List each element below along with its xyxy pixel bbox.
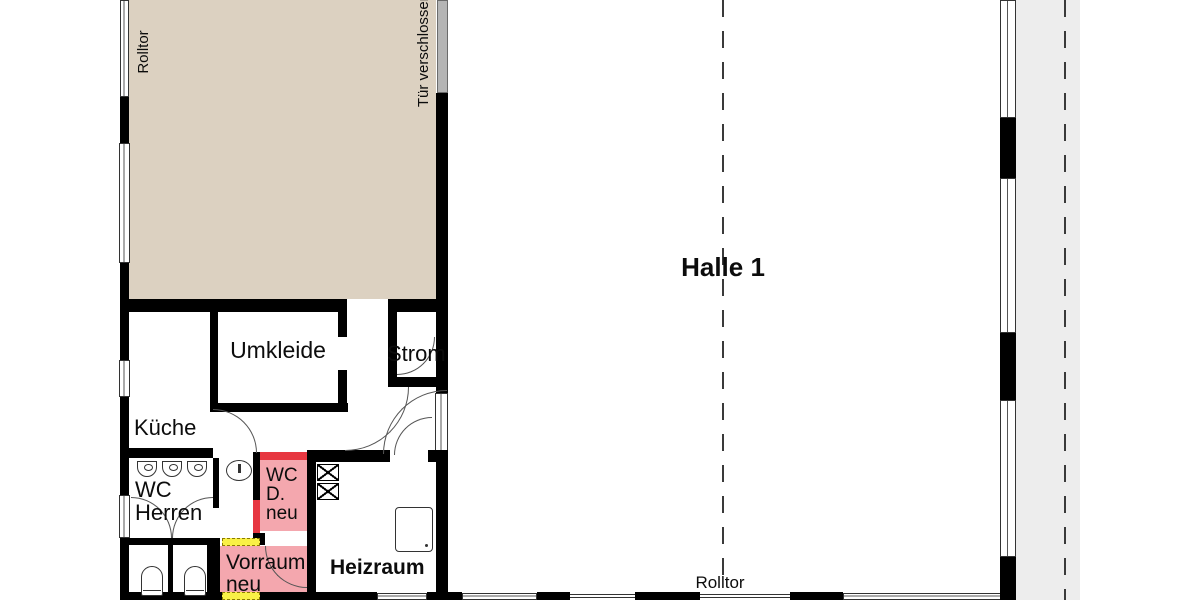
urinal-icon: [137, 461, 157, 477]
room-label-line: neu: [266, 504, 298, 523]
wall-segment: [307, 450, 390, 462]
wall-segment: [388, 299, 448, 312]
wall-segment: [120, 538, 129, 600]
window: [119, 143, 130, 263]
highlighted-wall: [258, 452, 307, 460]
wall-segment: [120, 448, 213, 458]
room-label-line: WC: [266, 466, 298, 485]
toilet-icon: [141, 566, 163, 596]
urinal-icon: [187, 461, 207, 477]
door-label-tuer-verschlossen: Tür verschlossen: [416, 0, 432, 107]
urinal-icon: [162, 461, 182, 477]
window: [1000, 178, 1016, 333]
shaft-box-icon: [317, 464, 339, 481]
room-label-heizraum: Heizraum: [330, 557, 425, 579]
window: [1000, 0, 1016, 118]
exterior-strip: [1016, 0, 1080, 600]
room-label-vorraum-neu: Vorraum neu: [226, 552, 305, 596]
window: [119, 360, 130, 397]
wall-segment: [120, 592, 222, 600]
toilet-icon: [184, 566, 206, 596]
window: [462, 593, 537, 600]
door-label-rolltor-left: Rolltor: [136, 30, 152, 73]
highlighted-wall: [253, 500, 260, 533]
wall-segment: [120, 538, 218, 545]
wall-segment: [427, 592, 462, 600]
locked-door: [437, 0, 448, 93]
wall-segment: [120, 397, 129, 495]
room-label-wc-herren: WC Herren: [135, 479, 202, 525]
rolltor-door-bottom: [700, 594, 790, 598]
room-label-line: D.: [266, 485, 298, 504]
wall-segment: [1000, 118, 1016, 178]
storage-room: [129, 0, 436, 299]
wall-segment: [120, 299, 347, 312]
wall-segment: [1000, 557, 1016, 600]
rolltor-door-left: [120, 0, 129, 97]
wall-segment: [436, 453, 448, 600]
wall-segment: [307, 452, 316, 600]
wall-segment: [790, 592, 843, 600]
room-label-line: WC: [135, 479, 202, 502]
wall-segment: [388, 377, 448, 387]
wall-segment: [120, 97, 129, 143]
room-label-halle: Halle 1: [648, 254, 798, 281]
room-label-wc-d-neu: WC D. neu: [266, 466, 298, 523]
room-label-umkleide: Umkleide: [218, 339, 338, 363]
wall-segment: [537, 592, 570, 600]
sink-icon: [226, 460, 252, 481]
window: [843, 593, 1008, 600]
wall-segment: [338, 312, 347, 337]
window: [1000, 400, 1016, 557]
wall-segment: [635, 592, 700, 600]
room-label-kueche: Küche: [134, 417, 196, 440]
room-label-strom: Strom: [387, 343, 446, 366]
wall-segment: [210, 403, 348, 412]
door-label-rolltor-bottom: Rolltor: [660, 574, 780, 592]
room-label-line: Vorraum: [226, 552, 305, 574]
opening: [570, 594, 635, 598]
new-door-marker: [222, 538, 260, 546]
window: [119, 495, 130, 538]
window: [377, 593, 427, 600]
room-label-line: neu: [226, 574, 305, 596]
room-label-line: Herren: [135, 502, 202, 525]
wall-segment: [207, 538, 220, 600]
boiler-icon: [395, 507, 433, 552]
wall-segment: [210, 312, 218, 411]
floor-plan: Halle 1 Umkleide Strom Küche WC Herren W…: [0, 0, 1200, 600]
wall-segment: [213, 458, 219, 508]
hall-center-axis-line: [722, 0, 724, 575]
exterior-axis-line: [1064, 0, 1066, 600]
wall-segment: [1000, 333, 1016, 400]
wall-segment: [253, 452, 260, 500]
door-arc: [213, 409, 257, 453]
shaft-box-icon: [317, 483, 339, 500]
